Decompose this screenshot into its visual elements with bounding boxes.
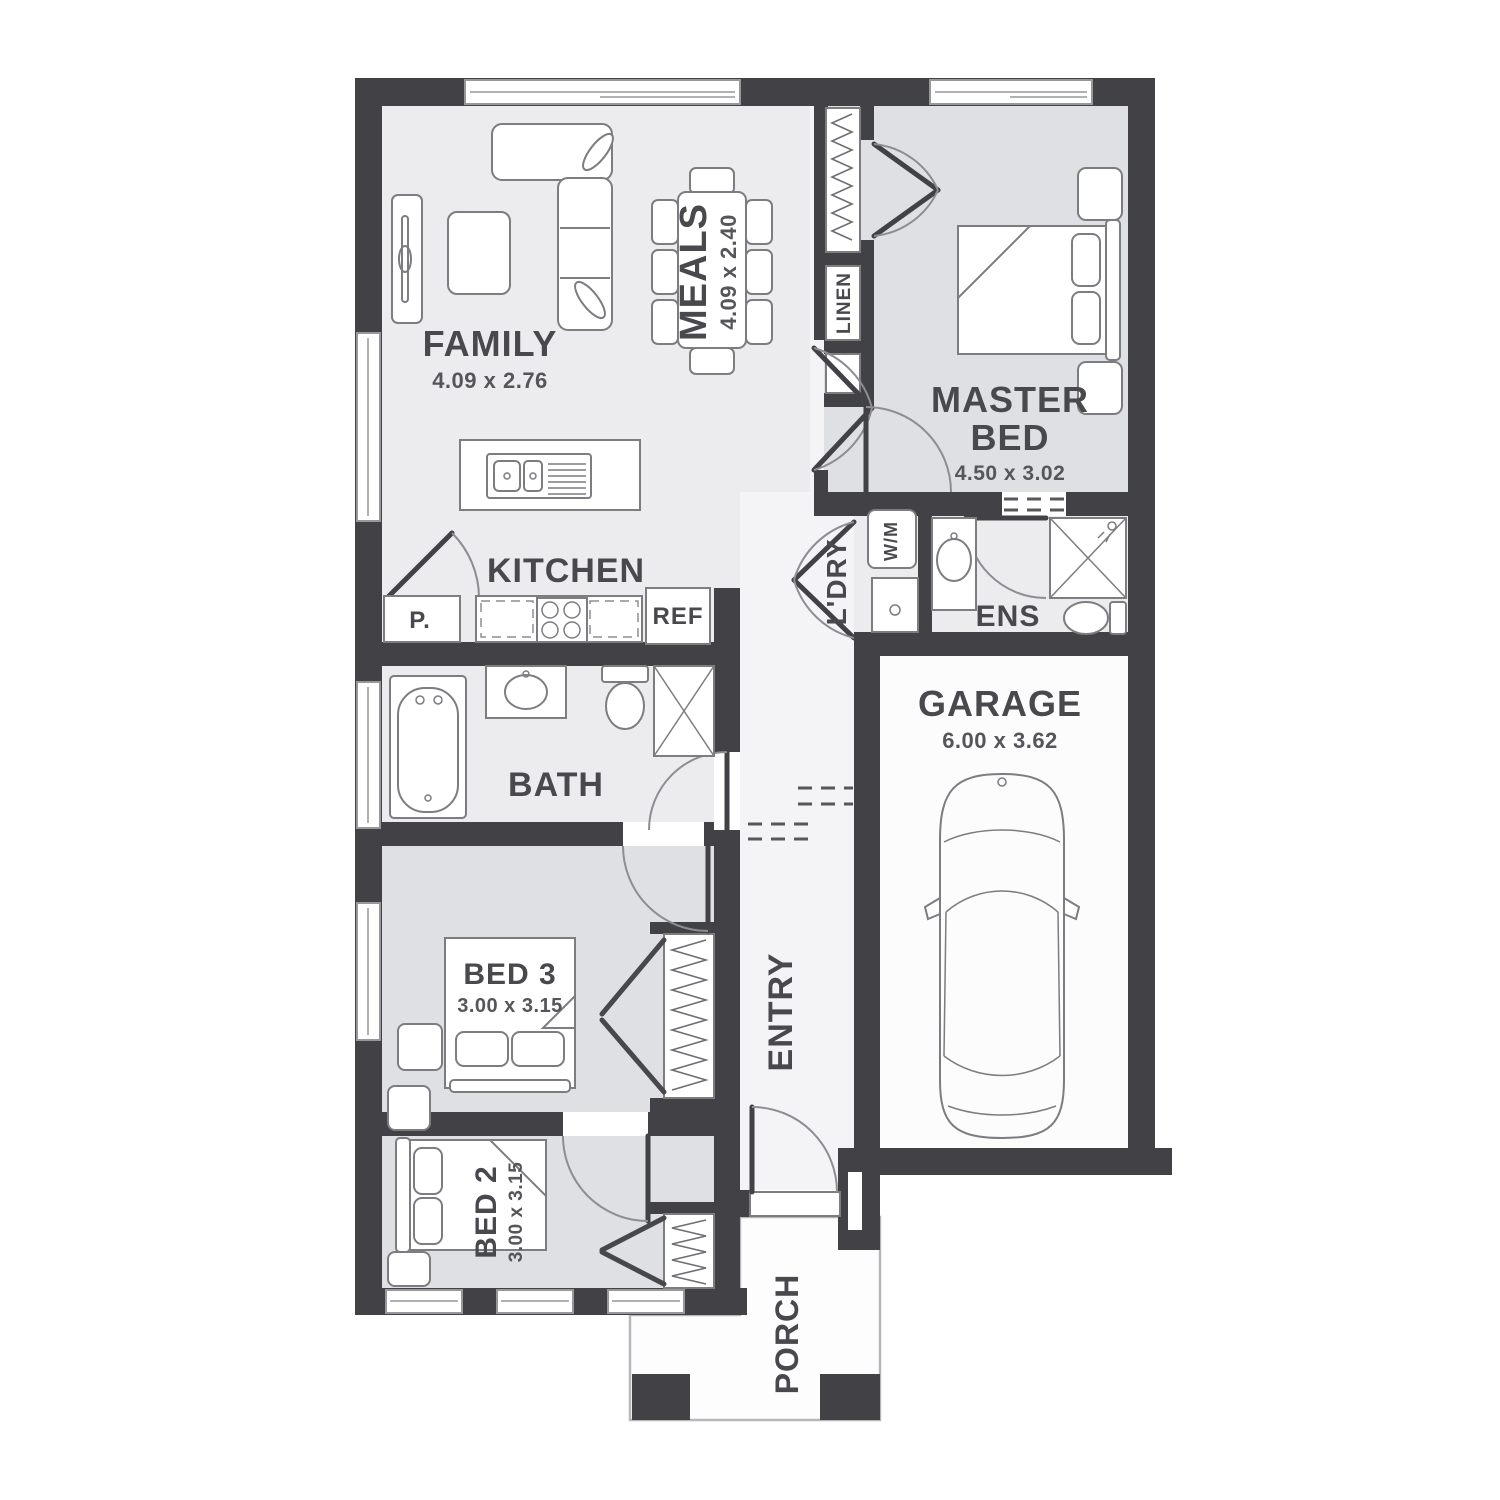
family-dims: 4.09 x 2.76	[432, 368, 548, 393]
washer-label-group: W/M	[881, 521, 901, 561]
wir-closet	[826, 108, 860, 252]
entry-label-group: ENTRY	[762, 953, 800, 1072]
bed2-bedside-bottom	[388, 1252, 430, 1286]
bed2-label-group: BED 2 3.00 x 3.15	[470, 1162, 527, 1263]
bed3-dims: 3.00 x 3.15	[457, 995, 563, 1017]
meals-label-group: MEALS 4.09 x 2.40	[673, 203, 741, 341]
windows-bed2-bottom	[386, 1290, 684, 1313]
bed2-dims: 3.00 x 3.15	[506, 1162, 527, 1263]
ens-shower	[1050, 518, 1126, 598]
kitchen-label: KITCHEN	[487, 552, 645, 590]
bed2-label: BED 2	[470, 1165, 503, 1258]
dining-chair	[746, 200, 772, 244]
wall-bed2-robe-top	[650, 1202, 714, 1214]
ens-vanity	[932, 518, 976, 610]
window-family-top	[465, 80, 740, 104]
meals-dims: 4.09 x 2.40	[716, 214, 741, 330]
bed3-pillow-1	[456, 1032, 508, 1066]
laundry-label-group: L'DRY	[821, 539, 852, 626]
linen-label: LINEN	[834, 272, 855, 334]
wall-garage-left	[854, 632, 880, 1148]
master-pillow-2	[1072, 292, 1100, 344]
master-label-1: MASTER	[931, 379, 1089, 420]
coffee-table	[448, 212, 510, 294]
garage-label: GARAGE	[918, 683, 1082, 724]
wall-bath-bottom	[381, 822, 623, 846]
ensuite-label: ENS	[976, 600, 1041, 633]
bath-vanity	[486, 666, 566, 718]
bed2-robe	[664, 1214, 714, 1288]
wall-bed3-bed2-east	[648, 1112, 714, 1136]
wall-bed3-robe-bottom	[650, 1098, 714, 1112]
laundry-label: L'DRY	[821, 539, 852, 626]
kitchen-bench	[476, 596, 642, 642]
porch-pier-right	[820, 1374, 880, 1420]
front-block-niche	[848, 1172, 862, 1230]
bed3-label: BED 3	[463, 958, 556, 991]
meals-label: MEALS	[673, 203, 715, 341]
pantry-label: P.	[409, 607, 431, 634]
bed2-pillow-2	[414, 1198, 442, 1244]
dining-chair	[690, 348, 734, 374]
wall-strip-right-top	[860, 106, 874, 140]
ens-toilet	[1064, 602, 1126, 634]
master-bedside-top	[1078, 168, 1122, 220]
bed3-bedside	[398, 1024, 442, 1070]
bed2-headboard	[396, 1138, 410, 1252]
wall-right	[1128, 78, 1155, 1175]
wall-garage-top	[854, 632, 1128, 656]
porch-pier-left	[632, 1374, 690, 1420]
wall-ldry-ens-divider	[918, 516, 932, 632]
wall-bath-bottom-east	[704, 822, 714, 846]
bath-toilet	[602, 666, 648, 729]
wall-kitchen-back	[381, 642, 740, 666]
wall-garage-bottom	[838, 1148, 1172, 1175]
bed2-bedside-top	[388, 1086, 430, 1130]
bed3-pillow-2	[512, 1032, 564, 1066]
dining-chair	[690, 168, 734, 194]
porch-label: PORCH	[769, 1274, 805, 1395]
bed3-headboard	[450, 1080, 570, 1092]
front-door-sill	[750, 1192, 840, 1216]
porch-label-group: PORCH	[769, 1274, 805, 1395]
master-pillow-1	[1072, 234, 1100, 286]
wall-linen-niche-divider	[824, 340, 864, 354]
washer-label: W/M	[881, 521, 901, 561]
window-bed3-left	[357, 903, 380, 1040]
fridge-label: REF	[653, 603, 704, 630]
bed2-pillow-1	[414, 1148, 442, 1194]
bath-shower	[654, 666, 714, 756]
floor-plan-svg: FAMILY 4.09 x 2.76 MEALS 4.09 x 2.40 MAS…	[0, 0, 1500, 1500]
window-family-left	[357, 333, 380, 521]
floor-plan-page: FAMILY 4.09 x 2.76 MEALS 4.09 x 2.40 MAS…	[0, 0, 1500, 1500]
master-dims: 4.50 x 3.02	[955, 462, 1066, 485]
dining-chair	[746, 250, 772, 294]
wall-wir-linen-divider	[824, 252, 864, 266]
master-label-2: BED	[970, 417, 1049, 458]
wall-entry-left-upper	[714, 588, 740, 752]
window-master-top	[930, 80, 1092, 104]
bath-label: BATH	[508, 766, 604, 804]
window-bath-left	[357, 682, 380, 828]
wall-entry-left-lower	[714, 830, 740, 1288]
garage-dims: 6.00 x 3.62	[942, 728, 1058, 753]
linen-label-group: LINEN	[834, 272, 855, 334]
wall-bed3-robe-top	[650, 922, 714, 934]
entry-label: ENTRY	[762, 953, 800, 1072]
family-label: FAMILY	[423, 323, 558, 364]
dining-chair	[746, 300, 772, 344]
bed3-robe	[664, 934, 714, 1098]
master-headboard	[1106, 220, 1120, 360]
wall-master-bottom-east	[1066, 492, 1128, 516]
